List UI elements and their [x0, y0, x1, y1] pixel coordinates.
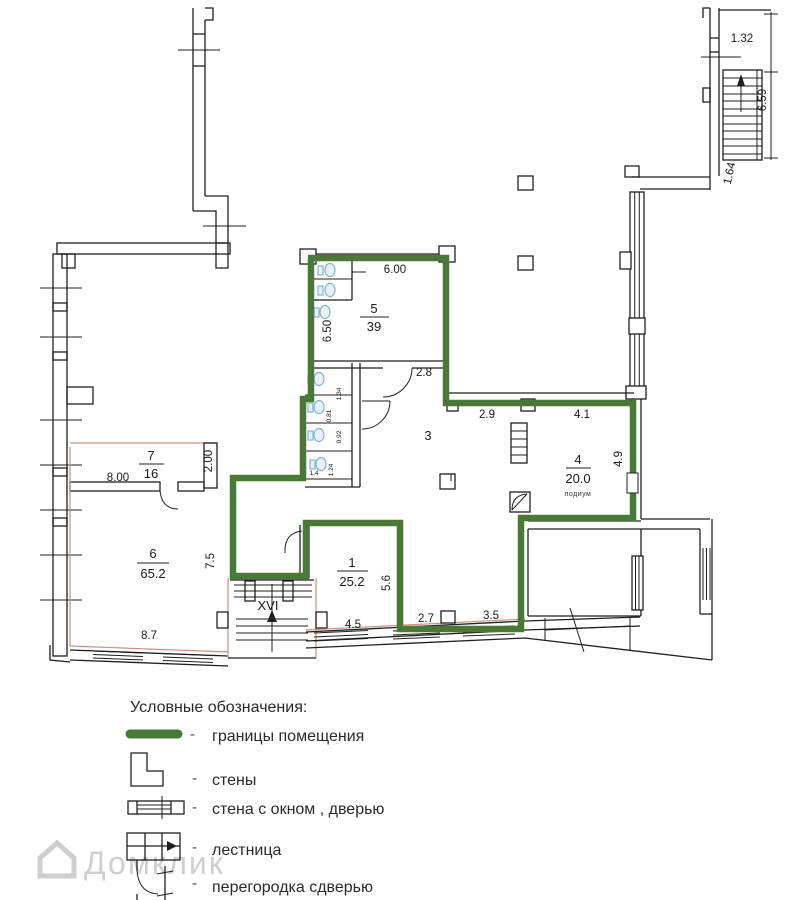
dim-1-24: 1.24 — [328, 463, 335, 476]
room-4-note: подиум — [565, 491, 592, 498]
room-7-number: 7 — [147, 448, 154, 463]
top-left-wing-walls — [57, 8, 246, 268]
room-6-number: 6 — [149, 546, 156, 561]
floor-plan-page: Домклик — [0, 0, 800, 900]
wc-icon — [314, 306, 330, 319]
room-6-labels: 6 65.2 7.5 8.7 — [137, 546, 217, 642]
room-5-labels: 6.00 5 39 6.50 2.8 — [322, 264, 432, 379]
watermark: Домклик — [40, 843, 225, 881]
dim-7-5: 7.5 — [205, 553, 217, 569]
legend-dash: - — [192, 770, 197, 787]
stair-direction-arrow — [737, 74, 745, 86]
south-wall-band — [306, 608, 712, 660]
legend-label: перегородка сдверью — [212, 879, 373, 896]
dim-0-81: 0.81 — [326, 409, 333, 422]
legend-dash: - — [192, 875, 197, 892]
legend-row-boundary: - границы помещения — [130, 726, 364, 745]
dim-2-8: 2.8 — [416, 367, 432, 379]
dim-2-7: 2.7 — [418, 613, 434, 625]
wc-icon — [308, 401, 324, 414]
wc-icon — [318, 284, 335, 297]
legend-row-window-wall: - стена с окном , дверью — [128, 796, 384, 819]
dim-5-6: 5.6 — [381, 575, 393, 591]
room-1-number: 1 — [348, 555, 355, 570]
room-3-number: 3 — [424, 428, 431, 443]
columns — [518, 176, 533, 270]
legend-row-walls: - стены — [131, 753, 256, 789]
watermark-text: Домклик — [84, 845, 225, 881]
room-5-area: 39 — [367, 319, 381, 334]
dim-8-7: 8.7 — [141, 630, 157, 642]
legend-dash: - — [192, 839, 197, 856]
room-6-area: 65.2 — [140, 566, 165, 581]
dim-2-9: 2.9 — [479, 409, 495, 421]
dim-1-34: 1.34 — [336, 387, 343, 400]
floor-plan-canvas: Домклик — [0, 0, 800, 900]
room-1-labels: 1 25.2 5.6 4.5 2.7 3.5 — [337, 555, 499, 631]
dim-1-4: 1.4 — [309, 470, 318, 477]
boundary-door-marker — [627, 473, 638, 493]
room-4-labels: 4.1 4 20.0 подиум 4.9 — [565, 409, 625, 498]
legend-dash: - — [190, 726, 195, 743]
room-1-area: 25.2 — [339, 574, 364, 589]
wc-icon — [310, 458, 326, 471]
watermark-house-icon — [40, 843, 74, 876]
dim-6-50: 6.50 — [322, 320, 334, 342]
room-4-area: 20.0 — [565, 471, 590, 486]
dim-6-59: 6.59 — [757, 89, 769, 111]
dim-4-5: 4.5 — [345, 619, 361, 631]
legend-label: лестница — [212, 842, 282, 859]
dim-1-64: 1.64 — [722, 161, 739, 186]
wall-corner-icon — [131, 753, 163, 786]
legend-label: границы помещения — [212, 728, 364, 745]
dim-4-9: 4.9 — [613, 451, 625, 467]
dim-3-5: 3.5 — [483, 610, 499, 622]
stairwell-label: XVI — [258, 598, 279, 613]
room-boundary-green — [233, 258, 638, 629]
room-4-number: 4 — [574, 452, 581, 467]
left-exterior-wall — [40, 254, 93, 662]
legend-dash: - — [192, 799, 197, 816]
wc-icon — [318, 264, 335, 277]
room-7-labels: 7 16 8.00 2.00 — [107, 448, 215, 484]
room-4-objects — [440, 423, 530, 512]
legend-title: Условные обозначения: — [130, 699, 307, 716]
bottom-right-room — [528, 519, 712, 660]
dim-8-00: 8.00 — [107, 472, 129, 484]
wall-with-window-door-icon — [128, 796, 184, 819]
room-3-labels: 3 2.9 — [424, 409, 495, 443]
wc-icon — [308, 429, 324, 442]
room-5-number: 5 — [370, 301, 377, 316]
top-right-stairwell: 1.32 6.59 1.64 — [625, 8, 778, 190]
dim-0-92: 0.92 — [336, 430, 343, 443]
dim-1-32: 1.32 — [731, 33, 753, 45]
legend-label: стена с окном , дверью — [212, 801, 384, 818]
dim-4-1: 4.1 — [574, 409, 590, 421]
legend: Условные обозначения: - границы помещени… — [127, 699, 384, 900]
dim-2-00: 2.00 — [203, 450, 215, 472]
stairwell-xvi: XVI — [217, 578, 327, 658]
column-on-boundary — [441, 611, 455, 623]
dim-6-00: 6.00 — [384, 264, 406, 276]
room-7-area: 16 — [144, 466, 158, 481]
legend-label: стены — [212, 772, 256, 789]
